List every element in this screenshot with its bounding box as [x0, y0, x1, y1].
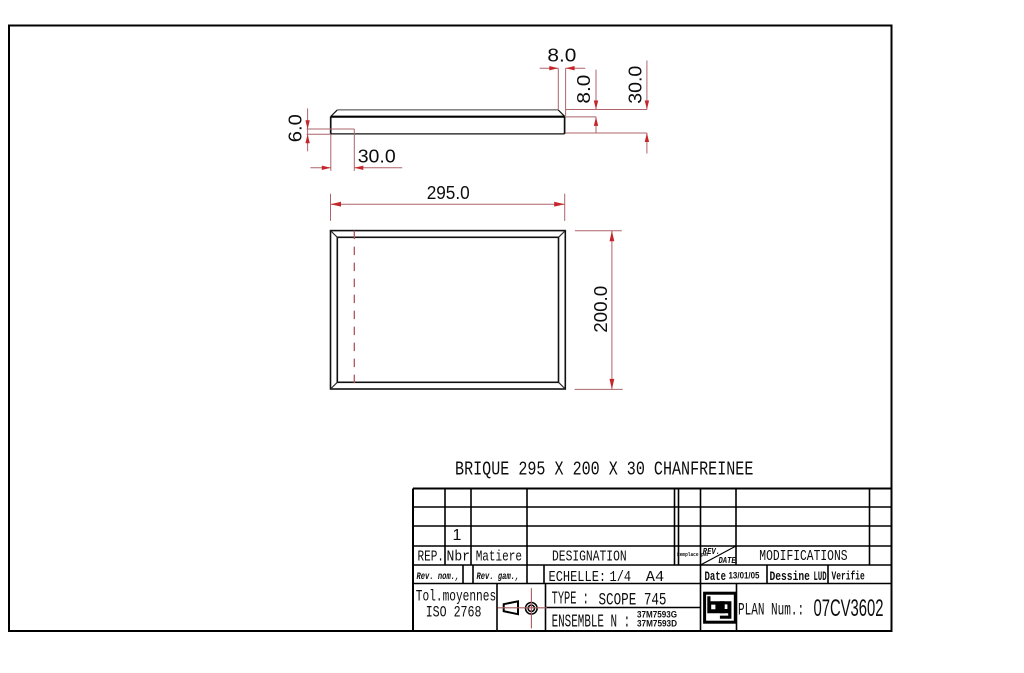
svg-text:ECHELLE:: ECHELLE:: [549, 570, 607, 587]
svg-text:DATE: DATE: [719, 556, 736, 566]
svg-text:13/01/05: 13/01/05: [729, 571, 760, 581]
svg-text:295.0: 295.0: [427, 182, 470, 203]
svg-text:Nbr: Nbr: [447, 549, 470, 566]
svg-text:Verifie: Verifie: [832, 570, 865, 584]
svg-text:REP.: REP.: [418, 548, 444, 565]
svg-text:Rev. gam.,: Rev. gam.,: [477, 571, 520, 583]
svg-text:DESIGNATION: DESIGNATION: [552, 548, 627, 565]
svg-text:30.0: 30.0: [358, 146, 396, 166]
svg-text:1/4: 1/4: [610, 570, 632, 587]
svg-text:MODIFICATIONS: MODIFICATIONS: [759, 548, 847, 565]
svg-text:Date: Date: [705, 571, 727, 585]
svg-text:Dessine: Dessine: [770, 571, 811, 584]
svg-text:30.0: 30.0: [626, 66, 646, 104]
svg-text:Tol.moyennes: Tol.moyennes: [416, 589, 496, 606]
svg-text:PLAN Num.:: PLAN Num.:: [738, 602, 804, 621]
svg-text:Rev. nom.,: Rev. nom.,: [417, 571, 460, 583]
svg-text:07CV3602: 07CV3602: [814, 595, 884, 622]
svg-text:A4: A4: [646, 568, 664, 586]
svg-text:ENSEMBLE N :: ENSEMBLE N :: [552, 610, 631, 632]
svg-text:Matiere: Matiere: [476, 548, 522, 565]
svg-text:8.0: 8.0: [574, 75, 594, 104]
svg-text:REV.: REV.: [703, 547, 720, 557]
svg-text:6.0: 6.0: [286, 114, 306, 142]
svg-text:BRIQUE 295 X 200 X 30 CHANFREI: BRIQUE 295 X 200 X 30 CHANFREINEE: [455, 460, 753, 481]
svg-text:8.0: 8.0: [547, 46, 576, 66]
svg-text:200.0: 200.0: [590, 286, 611, 333]
svg-text:1: 1: [453, 527, 462, 544]
svg-text:SCOPE 745: SCOPE 745: [599, 590, 667, 611]
svg-text:37M7593D: 37M7593D: [637, 619, 677, 630]
svg-text:TYPE :: TYPE :: [552, 588, 589, 609]
svg-text:LUD: LUD: [814, 570, 827, 585]
svg-text:ISO 2768: ISO 2768: [426, 605, 482, 622]
